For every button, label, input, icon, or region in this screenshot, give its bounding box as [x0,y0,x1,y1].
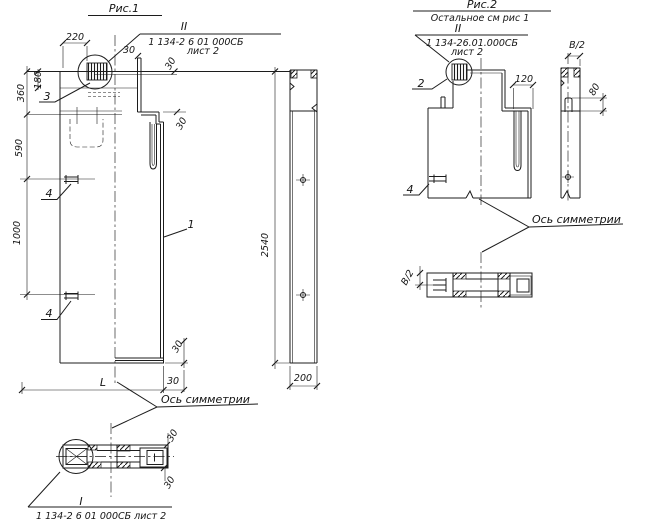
figure2: Рис.2 Остальное см рис 1 II 1 134-26.01.… [399,0,623,310]
fig1-hook-outer [150,122,157,169]
fig2-bracket [429,175,446,184]
fig2-subtitle: Остальное см рис 1 [431,13,530,24]
fig2-dim-B2-top: В/2 [569,40,585,51]
fig1-hook-inner [152,124,155,166]
technical-drawing: Рис.1 II 1 134-2 6 01 000СБ лист 2 [0,0,645,528]
fig1-main-view [27,35,290,385]
fig2-callout-sheet: лист 2 [450,47,483,58]
fig1-title: Рис.1 [88,2,162,16]
fig1-dim-1000: 1000 [12,221,23,245]
fig1-side-bar-view: 2540 200 [260,67,320,390]
fig1-label-4-lower: 4 [46,307,53,320]
fig1-dim-30-top: 30 [123,45,135,56]
fig2-pin [441,97,445,108]
fig1-dim-30-step: 30 [174,116,190,132]
fig2-side-hook [565,98,572,112]
fig1-bar-notch [290,83,294,90]
fig2-main-view: 120 2 4 [403,58,536,205]
fig1-section-dim-30-bottom: 30 [162,475,178,491]
fig1-label-3: 3 [44,90,51,103]
fig1-dim-2540: 2540 [260,233,271,257]
drawing-sheet: Рис.1 II 1 134-2 6 01 000СБ лист 2 [0,0,645,528]
fig1-label-4-upper: 4 [46,187,53,200]
fig2-section-bracket [433,278,446,292]
fig2-title-text: Рис.2 [467,0,497,11]
fig1-bracket-upper [64,175,78,184]
fig1-axis-text: Ось симметрии [161,393,250,406]
fig1-bracket-lower [64,292,78,301]
fig2-dim-80: 80 [587,82,603,98]
fig1-bottom-section: 30 30 I 1 134-2 6 01 000СБ лист 2 [28,423,181,522]
fig1-top-bar [138,58,142,112]
fig1-label-1: 1 [188,218,195,231]
fig2-detail-callout-II: II 1 134-26.01.000СБ лист 2 [415,22,528,62]
fig2-hook-inner [516,111,519,167]
fig2-callout-label: II [455,22,462,35]
fig2-hook-outer [514,111,521,171]
fig1-dim-200: 200 [294,373,312,384]
fig2-weld-detail [452,64,467,80]
fig1-hidden-pocket [70,119,103,147]
fig1-section-dim-30-top: 30 [165,428,181,444]
fig1-dim-180: 180 [33,71,44,89]
fig2-label-4: 4 [407,183,414,196]
fig1-dim-360: 360 [16,84,27,102]
fig1-title-text: Рис.1 [109,2,139,15]
fig1-callout-label: II [181,20,188,33]
fig1-dim-220: 220 [66,32,84,43]
fig2-axis-callout: Ось симметрии [479,199,623,252]
fig2-bottom-edge [428,191,531,198]
fig1-dim-L: L [100,376,106,389]
fig1-channel [161,122,164,358]
fig1-weld-detail [87,63,107,80]
fig1-section-caption: 1 134-2 6 01 000СБ лист 2 [36,511,166,522]
fig2-bottom-section: В/2 [399,252,532,310]
fig2-title: Рис.2 Остальное см рис 1 [413,0,551,24]
fig1-callout-sheet: лист 2 [186,46,219,57]
fig1-dim-590: 590 [14,139,25,157]
fig2-side-view: В/2 80 [561,40,607,203]
fig1-section-label: I [79,495,82,508]
fig2-label-2: 2 [418,77,425,90]
fig2-axis-text: Ось симметрии [532,213,621,226]
fig1-dim-30-bottom-h: 30 [167,376,179,387]
figure1: Рис.1 II 1 134-2 6 01 000СБ лист 2 [12,2,320,522]
fig2-dim-B2-section: В/2 [399,268,416,287]
fig2-dim-120: 120 [515,74,533,85]
